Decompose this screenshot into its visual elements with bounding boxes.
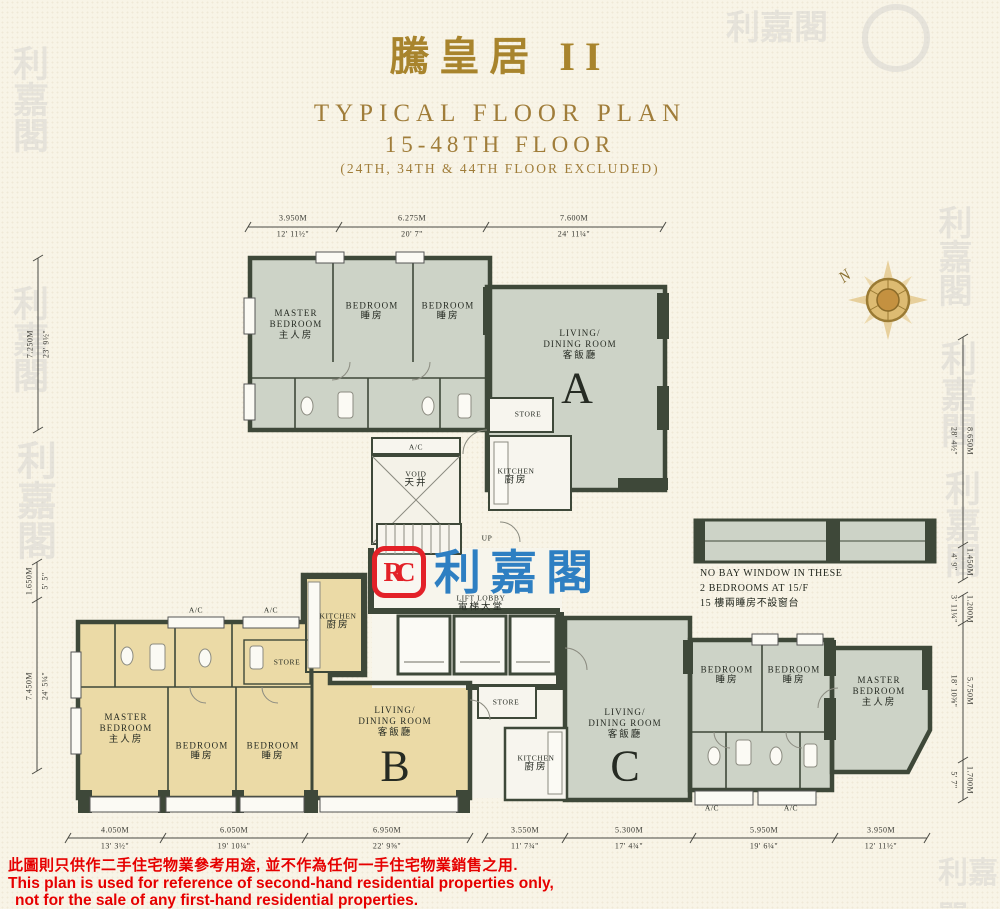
label-text: 客飯廳	[358, 727, 431, 739]
label-text: BEDROOM	[422, 300, 475, 311]
dim-ft: 19' 6¼"	[716, 842, 812, 851]
label-text: LIVING/	[588, 707, 661, 718]
room-label-master-bedroom-a: MASTER BEDROOM 主人房	[270, 308, 323, 342]
label-text: 睡房	[247, 752, 300, 764]
room-label-bedroom-b2: BEDROOM 睡房	[247, 740, 300, 763]
label-text: LIVING/	[358, 705, 431, 716]
dim-ft: 11' 7¾"	[477, 842, 573, 851]
dim-bottom-3: 6.950M22' 9⅝"	[339, 826, 435, 851]
dim-top-2: 6.275M20' 7"	[364, 214, 460, 239]
ricacorp-logo: RC 利嘉閣	[372, 546, 602, 598]
room-label-bedroom-a2: BEDROOM 睡房	[422, 300, 475, 323]
label-text: LIVING/	[543, 328, 616, 339]
label-text: 天井	[404, 479, 427, 491]
unit-letter-a: A	[561, 363, 593, 414]
label-text: KITCHEN	[517, 753, 554, 762]
ricacorp-logo-text: 利嘉閣	[434, 549, 602, 596]
label-text: STORE	[493, 697, 520, 706]
dim-m: 1.700M	[966, 732, 975, 828]
dim-m: 1.650M	[25, 533, 34, 629]
ricacorp-monogram-icon: RC	[372, 546, 426, 598]
label-text: MASTER	[853, 675, 906, 686]
label-text: 客飯廳	[543, 350, 616, 362]
floor-exclusions: (24TH, 34TH & 44TH FLOOR EXCLUDED)	[0, 161, 1000, 177]
no-bay-window-note: NO BAY WINDOW IN THESE 2 BEDROOMS AT 15/…	[700, 566, 842, 611]
dim-top-1: 3.950M12' 11½"	[245, 214, 341, 239]
room-label-ac-c1: A/C	[705, 803, 719, 812]
floor-range: 15-48TH FLOOR	[0, 132, 1000, 158]
dim-m: 7.450M	[25, 638, 34, 734]
disclaimer-zh: 此圖則只供作二手住宅物業參考用途, 並不作為任何一手住宅物業銷售之用.	[8, 858, 554, 875]
dim-bottom-4: 3.550M11' 7¾"	[477, 826, 573, 851]
dim-m: 7.250M	[26, 296, 35, 392]
dim-ft: 5' 5"	[41, 533, 50, 629]
label-text: 廚房	[517, 763, 554, 775]
label-text: 電梯大堂	[457, 603, 506, 615]
building-name: 騰皇居 II	[0, 24, 1000, 82]
label-text: 睡房	[768, 676, 821, 688]
label-text: 廚房	[319, 621, 356, 633]
dim-ft: 28' 4½"	[950, 393, 959, 489]
dim-ft: 20' 7"	[364, 230, 460, 239]
label-text: DINING ROOM	[588, 718, 661, 729]
room-label-master-bedroom-c: MASTER BEDROOM 主人房	[853, 675, 906, 709]
label-text: UP	[482, 533, 493, 542]
label-text: BEDROOM	[768, 664, 821, 675]
dim-ft: 12' 11½"	[833, 842, 929, 851]
label-text: BEDROOM	[100, 723, 153, 734]
dim-ft: 19' 10¼"	[186, 842, 282, 851]
label-text: A/C	[784, 803, 798, 812]
note-line: 2 BEDROOMS AT 15/F	[700, 581, 842, 596]
plan-title: TYPICAL FLOOR PLAN	[0, 100, 1000, 128]
label-text: KITCHEN	[497, 466, 534, 475]
dim-m: 5.950M	[716, 826, 812, 835]
room-label-bedroom-a1: BEDROOM 睡房	[346, 300, 399, 323]
room-label-living-b: LIVING/ DINING ROOM 客飯廳	[358, 705, 431, 739]
disclaimer-en-1: This plan is used for reference of secon…	[8, 875, 554, 892]
room-label-kitchen-a: KITCHEN 廚房	[497, 466, 534, 487]
dim-m: 4.050M	[67, 826, 163, 835]
label-text: 睡房	[176, 752, 229, 764]
title-block: 騰皇居 II TYPICAL FLOOR PLAN 15-48TH FLOOR …	[0, 24, 1000, 177]
dim-bottom-5: 5.300M17' 4¾"	[581, 826, 677, 851]
dim-left-3: 7.450M24' 5¼"	[25, 638, 50, 734]
dim-m: 8.650M	[966, 393, 975, 489]
label-text: 廚房	[497, 476, 534, 488]
note-line: 15 樓兩睡房不設窗台	[700, 596, 842, 611]
label-text: BEDROOM	[853, 686, 906, 697]
label-text: BEDROOM	[247, 740, 300, 751]
dim-ft: 17' 4¾"	[581, 842, 677, 851]
label-text: MASTER	[100, 712, 153, 723]
label-text: A/C	[409, 442, 423, 451]
dim-bottom-2: 6.050M19' 10¼"	[186, 826, 282, 851]
room-label-kitchen-c: KITCHEN 廚房	[517, 753, 554, 774]
dim-m: 6.275M	[364, 214, 460, 223]
dim-ft: 22' 9⅝"	[339, 842, 435, 851]
room-label-bedroom-b1: BEDROOM 睡房	[176, 740, 229, 763]
label-text: A/C	[189, 605, 203, 614]
room-label-living-c: LIVING/ DINING ROOM 客飯廳	[588, 707, 661, 741]
label-text: 主人房	[270, 330, 323, 342]
label-text: BEDROOM	[270, 319, 323, 330]
dim-right-5: 1.700M5' 7"	[950, 732, 975, 828]
compass-icon	[848, 260, 928, 340]
label-text: A/C	[705, 803, 719, 812]
room-label-store-a: STORE	[515, 409, 542, 418]
disclaimer: 此圖則只供作二手住宅物業參考用途, 並不作為任何一手住宅物業銷售之用. This…	[8, 858, 554, 909]
label-text: STORE	[515, 409, 542, 418]
dim-m: 6.950M	[339, 826, 435, 835]
dim-m: 5.300M	[581, 826, 677, 835]
dim-ft: 24' 11¼"	[526, 230, 622, 239]
dim-m: 3.550M	[477, 826, 573, 835]
dim-m: 5.750M	[966, 643, 975, 739]
label-text: KITCHEN	[319, 611, 356, 620]
label-text: DINING ROOM	[543, 339, 616, 350]
dim-m: 3.950M	[833, 826, 929, 835]
room-label-living-a: LIVING/ DINING ROOM 客飯廳	[543, 328, 616, 362]
dim-ft: 18' 10⅜"	[950, 643, 959, 739]
room-label-store-c: STORE	[493, 697, 520, 706]
dim-bottom-7: 3.950M12' 11½"	[833, 826, 929, 851]
room-label-ac-b1: A/C	[189, 605, 203, 614]
unit-letter-c: C	[610, 741, 639, 792]
label-text: DINING ROOM	[358, 716, 431, 727]
label-text: MASTER	[270, 308, 323, 319]
label-text: 睡房	[422, 312, 475, 324]
lifts	[398, 616, 556, 674]
room-label-bedroom-c1: BEDROOM 睡房	[701, 664, 754, 687]
label-text: 睡房	[346, 312, 399, 324]
dim-ft: 24' 5¼"	[41, 638, 50, 734]
label-text: A/C	[264, 605, 278, 614]
room-label-master-bedroom-b: MASTER BEDROOM 主人房	[100, 712, 153, 746]
disclaimer-en-2: not for the sale of any first-hand resid…	[8, 892, 554, 909]
room-label-ac-b2: A/C	[264, 605, 278, 614]
label-text: 主人房	[853, 697, 906, 709]
room-label-ac-a: A/C	[409, 442, 423, 451]
label-text: BEDROOM	[701, 664, 754, 675]
room-label-ac-c2: A/C	[784, 803, 798, 812]
dim-left-2: 1.650M5' 5"	[25, 533, 50, 629]
dim-right-4: 5.750M18' 10⅜"	[950, 643, 975, 739]
dim-m: 3.950M	[245, 214, 341, 223]
dim-ft: 23' 9½"	[42, 296, 51, 392]
note-line: NO BAY WINDOW IN THESE	[700, 566, 842, 581]
label-text: 睡房	[701, 676, 754, 688]
label-text: BEDROOM	[176, 740, 229, 751]
dim-ft: 12' 11½"	[245, 230, 341, 239]
dim-top-3: 7.600M24' 11¼"	[526, 214, 622, 239]
label-text: STORE	[274, 657, 301, 666]
dim-m: 7.600M	[526, 214, 622, 223]
dim-left-1: 7.250M23' 9½"	[26, 296, 51, 392]
label-text: BEDROOM	[346, 300, 399, 311]
dim-bottom-6: 5.950M19' 6¼"	[716, 826, 812, 851]
unit-letter-b: B	[380, 741, 409, 792]
room-label-bedroom-c2: BEDROOM 睡房	[768, 664, 821, 687]
label-text: VOID	[404, 469, 427, 478]
dim-right-1: 8.650M28' 4½"	[950, 393, 975, 489]
label-text: 客飯廳	[588, 729, 661, 741]
room-label-store-b: STORE	[274, 657, 301, 666]
dim-ft: 5' 7"	[950, 732, 959, 828]
label-text: 主人房	[100, 734, 153, 746]
dim-bottom-1: 4.050M13' 3½"	[67, 826, 163, 851]
stairs-up-label: UP	[482, 533, 493, 542]
monogram-letters: RC	[384, 557, 409, 588]
room-label-void: VOID 天井	[404, 469, 427, 490]
dim-ft: 13' 3½"	[67, 842, 163, 851]
floor-plan-page: 利嘉閣 利嘉閣 利嘉閣 利嘉閣 利嘉閣 利嘉閣 利嘉閣 利嘉閣 騰皇居 II T…	[0, 0, 1000, 909]
room-label-kitchen-b: KITCHEN 廚房	[319, 611, 356, 632]
dim-m: 6.050M	[186, 826, 282, 835]
